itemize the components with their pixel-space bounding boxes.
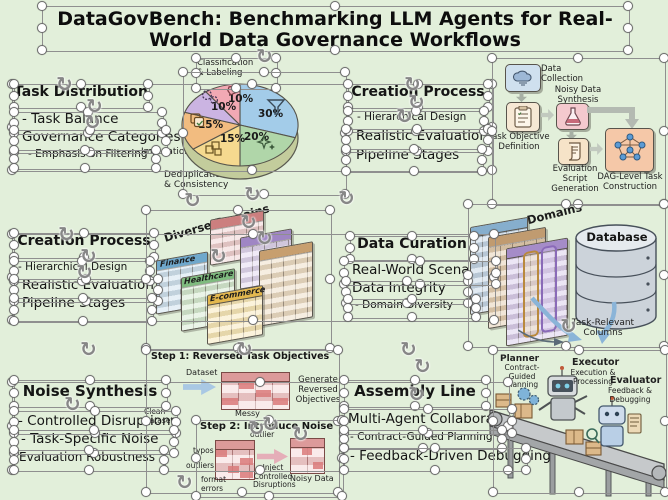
selection-handle[interactable] bbox=[507, 404, 517, 414]
rotate-handle-icon[interactable]: ↻ bbox=[248, 418, 265, 438]
selection-handle[interactable] bbox=[415, 256, 425, 266]
selection-handle[interactable] bbox=[9, 107, 19, 117]
selection-handle[interactable] bbox=[343, 91, 353, 101]
selection-handle[interactable] bbox=[507, 428, 517, 438]
selection-handle[interactable] bbox=[9, 465, 19, 475]
selection-handle[interactable] bbox=[489, 315, 499, 325]
selection-handle[interactable] bbox=[9, 316, 19, 326]
selection-handle[interactable] bbox=[659, 199, 668, 209]
selection-handle[interactable] bbox=[9, 163, 19, 173]
rotate-handle-icon[interactable]: ↻ bbox=[292, 424, 309, 444]
selection-handle[interactable] bbox=[271, 83, 281, 93]
selection-handle[interactable] bbox=[521, 443, 531, 453]
selection-handle[interactable] bbox=[561, 341, 571, 351]
selection-handle[interactable] bbox=[623, 23, 633, 33]
selection-handle[interactable] bbox=[37, 23, 47, 33]
selection-handle[interactable] bbox=[9, 305, 19, 315]
selection-handle[interactable] bbox=[418, 425, 428, 435]
selection-handle[interactable] bbox=[409, 166, 419, 176]
selection-handle[interactable] bbox=[659, 53, 668, 63]
selection-handle[interactable] bbox=[521, 465, 531, 475]
selection-handle[interactable] bbox=[574, 487, 584, 497]
rotate-handle-icon[interactable]: ↻ bbox=[84, 112, 101, 132]
selection-handle[interactable] bbox=[147, 316, 157, 326]
selection-handle[interactable] bbox=[521, 454, 531, 464]
selection-handle[interactable] bbox=[430, 465, 440, 475]
selection-handle[interactable] bbox=[145, 256, 155, 266]
selection-handle[interactable] bbox=[171, 406, 181, 416]
selection-box bbox=[493, 350, 667, 494]
selection-handle[interactable] bbox=[247, 165, 257, 175]
selection-handle[interactable] bbox=[84, 465, 94, 475]
selection-handle[interactable] bbox=[481, 375, 491, 385]
selection-handle[interactable] bbox=[339, 443, 349, 453]
selection-handle[interactable] bbox=[660, 345, 668, 355]
selection-handle[interactable] bbox=[339, 375, 349, 385]
selection-handle[interactable] bbox=[488, 487, 498, 497]
selection-handle[interactable] bbox=[143, 79, 153, 89]
selection-handle[interactable] bbox=[247, 79, 257, 89]
selection-handle[interactable] bbox=[9, 125, 19, 135]
selection-handle[interactable] bbox=[574, 345, 584, 355]
selection-handle[interactable] bbox=[325, 274, 335, 284]
selection-handle[interactable] bbox=[623, 45, 633, 55]
selection-handle[interactable] bbox=[90, 406, 100, 416]
selection-handle[interactable] bbox=[151, 163, 161, 173]
selection-handle[interactable] bbox=[9, 79, 19, 89]
selection-handle[interactable] bbox=[9, 455, 19, 465]
selection-handle[interactable] bbox=[481, 388, 491, 398]
selection-handle[interactable] bbox=[430, 443, 440, 453]
selection-handle[interactable] bbox=[84, 445, 94, 455]
selection-handle[interactable] bbox=[161, 136, 171, 146]
rotate-handle-icon[interactable]: ↻ bbox=[64, 394, 81, 414]
selection-handle[interactable] bbox=[149, 228, 159, 238]
selection-handle[interactable] bbox=[330, 1, 340, 11]
selection-handle[interactable] bbox=[488, 345, 498, 355]
selection-handle[interactable] bbox=[9, 293, 19, 303]
selection-handle[interactable] bbox=[231, 83, 241, 93]
rotate-handle-icon[interactable]: ↻ bbox=[256, 46, 273, 66]
selection-handle[interactable] bbox=[191, 53, 201, 63]
selection-handle[interactable] bbox=[178, 128, 188, 138]
selection-handle[interactable] bbox=[147, 305, 157, 315]
rotate-handle-icon[interactable]: ↻ bbox=[76, 262, 93, 282]
selection-handle[interactable] bbox=[159, 445, 169, 455]
selection-handle[interactable] bbox=[141, 487, 151, 497]
selection-handle[interactable] bbox=[143, 102, 153, 112]
selection-handle[interactable] bbox=[264, 491, 274, 500]
selection-handle[interactable] bbox=[9, 91, 19, 101]
selection-handle[interactable] bbox=[37, 1, 47, 11]
rotate-handle-icon[interactable]: ↻ bbox=[56, 74, 73, 94]
selection-handle[interactable] bbox=[141, 274, 151, 284]
selection-handle[interactable] bbox=[325, 205, 335, 215]
selection-handle[interactable] bbox=[343, 312, 353, 322]
selection-handle[interactable] bbox=[9, 228, 19, 238]
selection-handle[interactable] bbox=[503, 465, 513, 475]
selection-handle[interactable] bbox=[339, 388, 349, 398]
selection-handle[interactable] bbox=[491, 256, 501, 266]
rotate-handle-icon[interactable]: ↻ bbox=[244, 184, 261, 204]
rotate-handle-icon[interactable]: ↻ bbox=[256, 228, 273, 248]
selection-handle[interactable] bbox=[169, 448, 179, 458]
selection-handle[interactable] bbox=[573, 199, 583, 209]
selection-handle[interactable] bbox=[141, 205, 151, 215]
rotate-handle-icon[interactable]: ↻ bbox=[176, 472, 193, 492]
selection-box bbox=[492, 58, 666, 206]
selection-handle[interactable] bbox=[339, 465, 349, 475]
selection-handle[interactable] bbox=[248, 315, 258, 325]
selection-handle[interactable] bbox=[487, 126, 497, 136]
selection-handle[interactable] bbox=[487, 165, 497, 175]
selection-handle[interactable] bbox=[80, 145, 90, 155]
selection-handle[interactable] bbox=[149, 240, 159, 250]
selection-handle[interactable] bbox=[191, 415, 201, 425]
rotate-handle-icon[interactable]: ↻ bbox=[80, 339, 97, 359]
selection-box bbox=[146, 210, 332, 350]
selection-handle[interactable] bbox=[469, 254, 479, 264]
selection-handle[interactable] bbox=[407, 294, 417, 304]
selection-handle[interactable] bbox=[178, 67, 188, 77]
selection-handle[interactable] bbox=[9, 274, 19, 284]
selection-handle[interactable] bbox=[9, 375, 19, 385]
selection-handle[interactable] bbox=[659, 126, 668, 136]
rotate-handle-icon[interactable]: ↻ bbox=[414, 356, 431, 376]
rotate-handle-icon[interactable]: ↻ bbox=[338, 188, 355, 208]
selection-handle[interactable] bbox=[37, 45, 47, 55]
editor-canvas[interactable]: DataGovBench: Benchmarking LLM Agents fo… bbox=[0, 0, 668, 500]
selection-handle[interactable] bbox=[161, 375, 171, 385]
rotate-handle-icon[interactable]: ↻ bbox=[184, 190, 201, 210]
selection-handle[interactable] bbox=[483, 79, 493, 89]
selection-handle[interactable] bbox=[407, 312, 417, 322]
selection-handle[interactable] bbox=[330, 45, 340, 55]
selection-handle[interactable] bbox=[418, 443, 428, 453]
selection-handle[interactable] bbox=[147, 293, 157, 303]
selection-box bbox=[183, 72, 347, 196]
selection-handle[interactable] bbox=[271, 68, 281, 78]
selection-handle[interactable] bbox=[333, 345, 343, 355]
selection-handle[interactable] bbox=[141, 345, 151, 355]
selection-handle[interactable] bbox=[343, 106, 353, 116]
selection-handle[interactable] bbox=[161, 388, 171, 398]
selection-handle[interactable] bbox=[345, 243, 355, 253]
selection-handle[interactable] bbox=[491, 268, 501, 278]
rotate-handle-icon[interactable]: ↻ bbox=[236, 339, 253, 359]
selection-handle[interactable] bbox=[9, 445, 19, 455]
selection-handle[interactable] bbox=[191, 453, 201, 463]
selection-handle[interactable] bbox=[78, 316, 88, 326]
selection-handle[interactable] bbox=[340, 67, 350, 77]
selection-handle[interactable] bbox=[337, 491, 347, 500]
selection-handle[interactable] bbox=[341, 155, 351, 165]
selection-handle[interactable] bbox=[341, 166, 351, 176]
rotate-handle-icon[interactable]: ↻ bbox=[240, 212, 257, 232]
selection-handle[interactable] bbox=[341, 144, 351, 154]
selection-handle[interactable] bbox=[153, 274, 163, 284]
selection-handle[interactable] bbox=[141, 416, 151, 426]
selection-handle[interactable] bbox=[471, 312, 481, 322]
selection-handle[interactable] bbox=[488, 416, 498, 426]
selection-handle[interactable] bbox=[9, 425, 19, 435]
selection-handle[interactable] bbox=[169, 425, 179, 435]
selection-handle[interactable] bbox=[469, 231, 479, 241]
selection-handle[interactable] bbox=[507, 416, 517, 426]
selection-handle[interactable] bbox=[412, 124, 422, 134]
selection-handle[interactable] bbox=[402, 276, 412, 286]
selection-handle[interactable] bbox=[85, 375, 95, 385]
selection-handle[interactable] bbox=[407, 231, 417, 241]
selection-handle[interactable] bbox=[9, 256, 19, 266]
selection-handle[interactable] bbox=[89, 425, 99, 435]
selection-handle[interactable] bbox=[159, 465, 169, 475]
rotate-handle-icon[interactable]: ↻ bbox=[396, 106, 413, 126]
selection-handle[interactable] bbox=[157, 107, 167, 117]
selection-handle[interactable] bbox=[415, 279, 425, 289]
selection-handle[interactable] bbox=[491, 279, 501, 289]
selection-handle[interactable] bbox=[659, 270, 668, 280]
selection-handle[interactable] bbox=[231, 53, 241, 63]
rotate-handle-icon[interactable]: ↻ bbox=[58, 224, 75, 244]
selection-handle[interactable] bbox=[76, 79, 86, 89]
selection-handle[interactable] bbox=[573, 53, 583, 63]
selection-handle[interactable] bbox=[339, 404, 349, 414]
selection-handle[interactable] bbox=[477, 166, 487, 176]
selection-handle[interactable] bbox=[477, 144, 487, 154]
selection-handle[interactable] bbox=[339, 454, 349, 464]
selection-handle[interactable] bbox=[78, 293, 88, 303]
selection-handle[interactable] bbox=[9, 388, 19, 398]
selection-handle[interactable] bbox=[161, 401, 171, 411]
selection-handle[interactable] bbox=[255, 377, 265, 387]
selection-handle[interactable] bbox=[341, 276, 351, 286]
selection-handle[interactable] bbox=[169, 437, 179, 447]
selection-handle[interactable] bbox=[143, 91, 153, 101]
selection-handle[interactable] bbox=[9, 406, 19, 416]
selection-handle[interactable] bbox=[481, 401, 491, 411]
selection-handle[interactable] bbox=[660, 416, 668, 426]
selection-handle[interactable] bbox=[463, 341, 473, 351]
selection-handle[interactable] bbox=[79, 228, 89, 238]
selection-handle[interactable] bbox=[259, 67, 269, 77]
selection-handle[interactable] bbox=[409, 144, 419, 154]
selection-handle[interactable] bbox=[345, 231, 355, 241]
selection-handle[interactable] bbox=[483, 91, 493, 101]
selection-handle[interactable] bbox=[561, 199, 571, 209]
selection-handle[interactable] bbox=[503, 377, 513, 387]
selection-handle[interactable] bbox=[660, 487, 668, 497]
rotate-handle-icon[interactable]: ↻ bbox=[560, 316, 577, 336]
selection-handle[interactable] bbox=[339, 256, 349, 266]
selection-handle[interactable] bbox=[623, 1, 633, 11]
selection-handle[interactable] bbox=[489, 229, 499, 239]
selection-handle[interactable] bbox=[463, 270, 473, 280]
selection-handle[interactable] bbox=[463, 199, 473, 209]
rotate-handle-icon[interactable]: ↻ bbox=[408, 384, 425, 404]
selection-handle[interactable] bbox=[159, 455, 169, 465]
selection-handle[interactable] bbox=[479, 106, 489, 116]
rotate-handle-icon[interactable]: ↻ bbox=[210, 246, 227, 266]
selection-handle[interactable] bbox=[483, 135, 493, 145]
selection-handle[interactable] bbox=[477, 155, 487, 165]
selection-handle[interactable] bbox=[469, 243, 479, 253]
selection-handle[interactable] bbox=[161, 147, 171, 157]
selection-handle[interactable] bbox=[9, 240, 19, 250]
selection-handle[interactable] bbox=[191, 83, 201, 93]
selection-handle[interactable] bbox=[343, 79, 353, 89]
selection-handle[interactable] bbox=[341, 124, 351, 134]
selection-overlay: ↻↻↻↻↻↻↻↻↻↻↻↻↻↻↻↻↻↻↻↻↻↻↻↻↻↻↻ bbox=[0, 0, 668, 500]
selection-handle[interactable] bbox=[255, 465, 265, 475]
selection-handle[interactable] bbox=[237, 487, 247, 497]
selection-handle[interactable] bbox=[161, 125, 171, 135]
selection-handle[interactable] bbox=[191, 68, 201, 78]
selection-handle[interactable] bbox=[487, 199, 497, 209]
selection-handle[interactable] bbox=[487, 53, 497, 63]
selection-handle[interactable] bbox=[80, 163, 90, 173]
selection-handle[interactable] bbox=[497, 443, 507, 453]
